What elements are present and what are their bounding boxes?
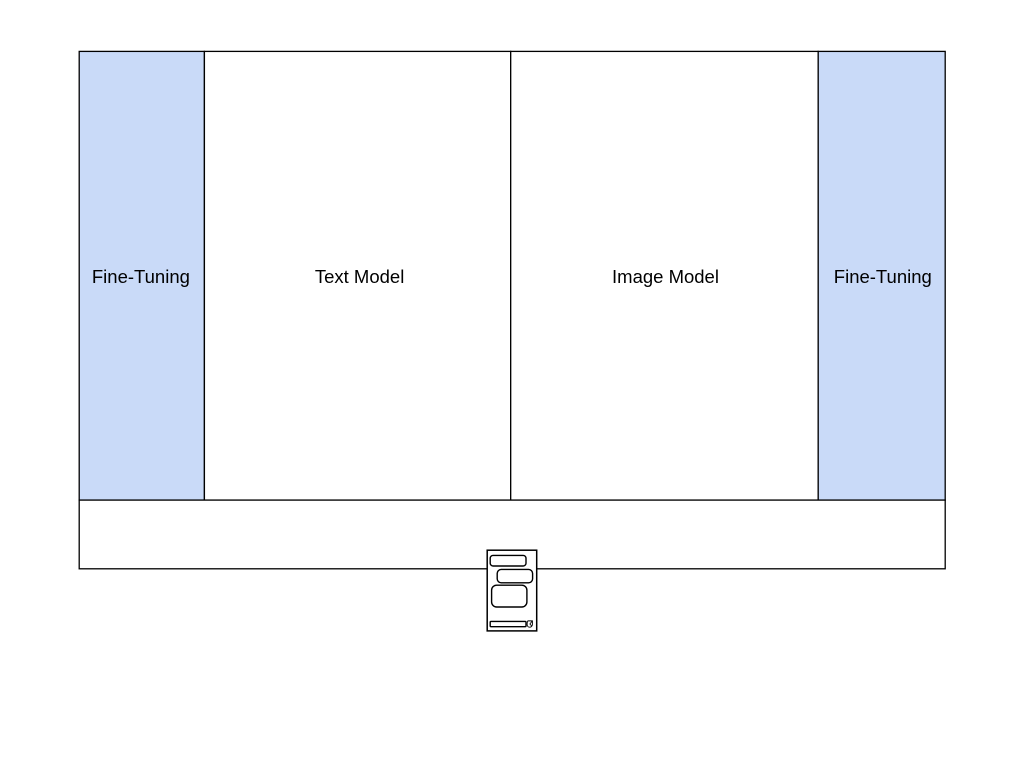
svg-text:Text Model: Text Model — [315, 266, 404, 287]
svg-text:Fine-Tuning: Fine-Tuning — [834, 266, 932, 287]
svg-text:Fine-Tuning: Fine-Tuning — [92, 266, 190, 287]
svg-text:Image Model: Image Model — [612, 266, 719, 287]
